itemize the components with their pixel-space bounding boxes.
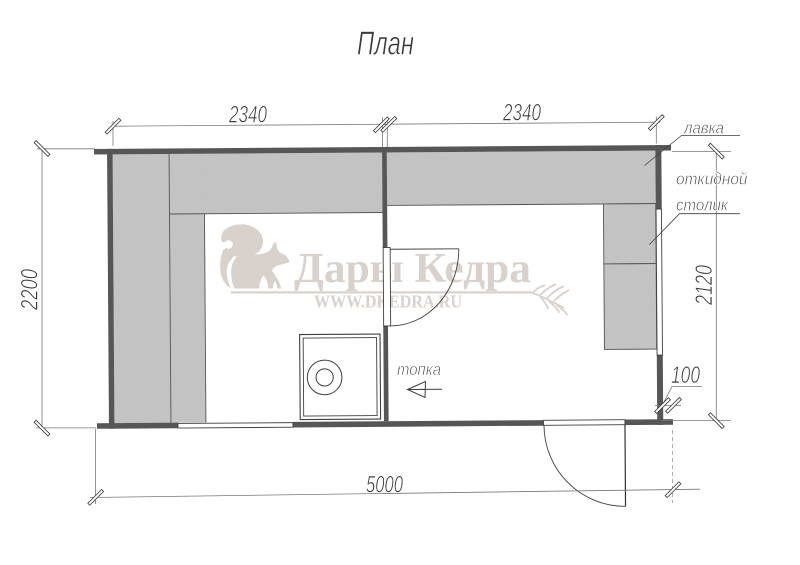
- svg-text:План: План: [357, 25, 414, 62]
- svg-text:2120: 2120: [691, 265, 718, 306]
- svg-text:столик: столик: [676, 196, 729, 215]
- svg-text:100: 100: [671, 362, 700, 389]
- svg-text:2200: 2200: [17, 268, 44, 310]
- svg-text:5000: 5000: [366, 472, 403, 499]
- svg-text:2340: 2340: [228, 102, 267, 129]
- svg-text:топка: топка: [397, 360, 441, 379]
- svg-text:Дары Кедра: Дары Кедра: [294, 246, 531, 292]
- svg-text:2340: 2340: [502, 100, 541, 127]
- svg-text:откидной: откидной: [676, 170, 748, 189]
- svg-text:лавка: лавка: [683, 119, 724, 138]
